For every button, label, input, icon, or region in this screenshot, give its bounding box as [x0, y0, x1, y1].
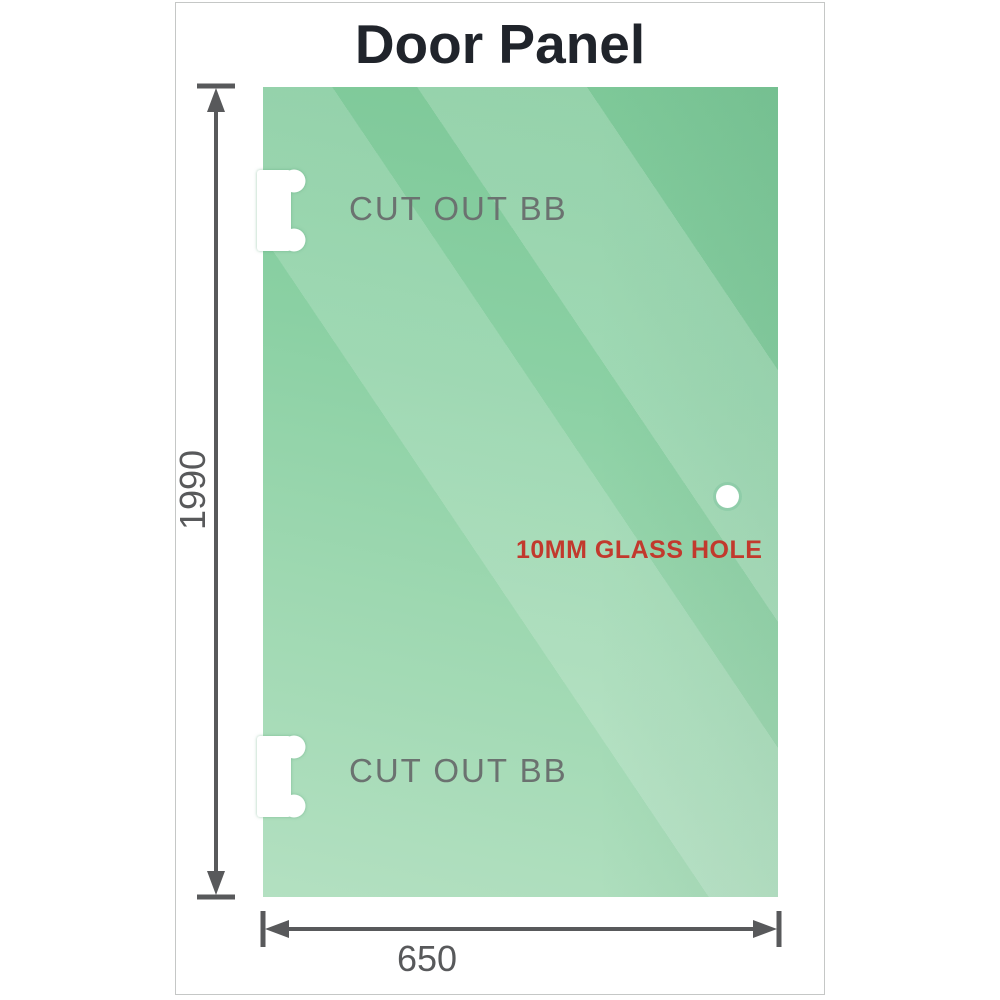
glass-hole-label: 10MM GLASS HOLE — [516, 536, 762, 565]
width-dimension-arrow-icon — [260, 909, 782, 949]
height-dimension-label: 1990 — [173, 450, 213, 530]
cutout-label-top: CUT OUT BB — [349, 190, 568, 228]
cutout-label-bottom: CUT OUT BB — [349, 752, 568, 790]
hinge-cutout-top-icon — [257, 163, 307, 259]
glass-hole-icon — [716, 485, 739, 508]
hinge-cutout-bottom-icon — [257, 729, 307, 825]
page-title: Door Panel — [175, 12, 825, 76]
width-dimension-label: 650 — [377, 938, 477, 980]
diagram-canvas: Door Panel CUT OUT BB CUT OUT BB 10MM GL… — [0, 0, 1000, 1000]
